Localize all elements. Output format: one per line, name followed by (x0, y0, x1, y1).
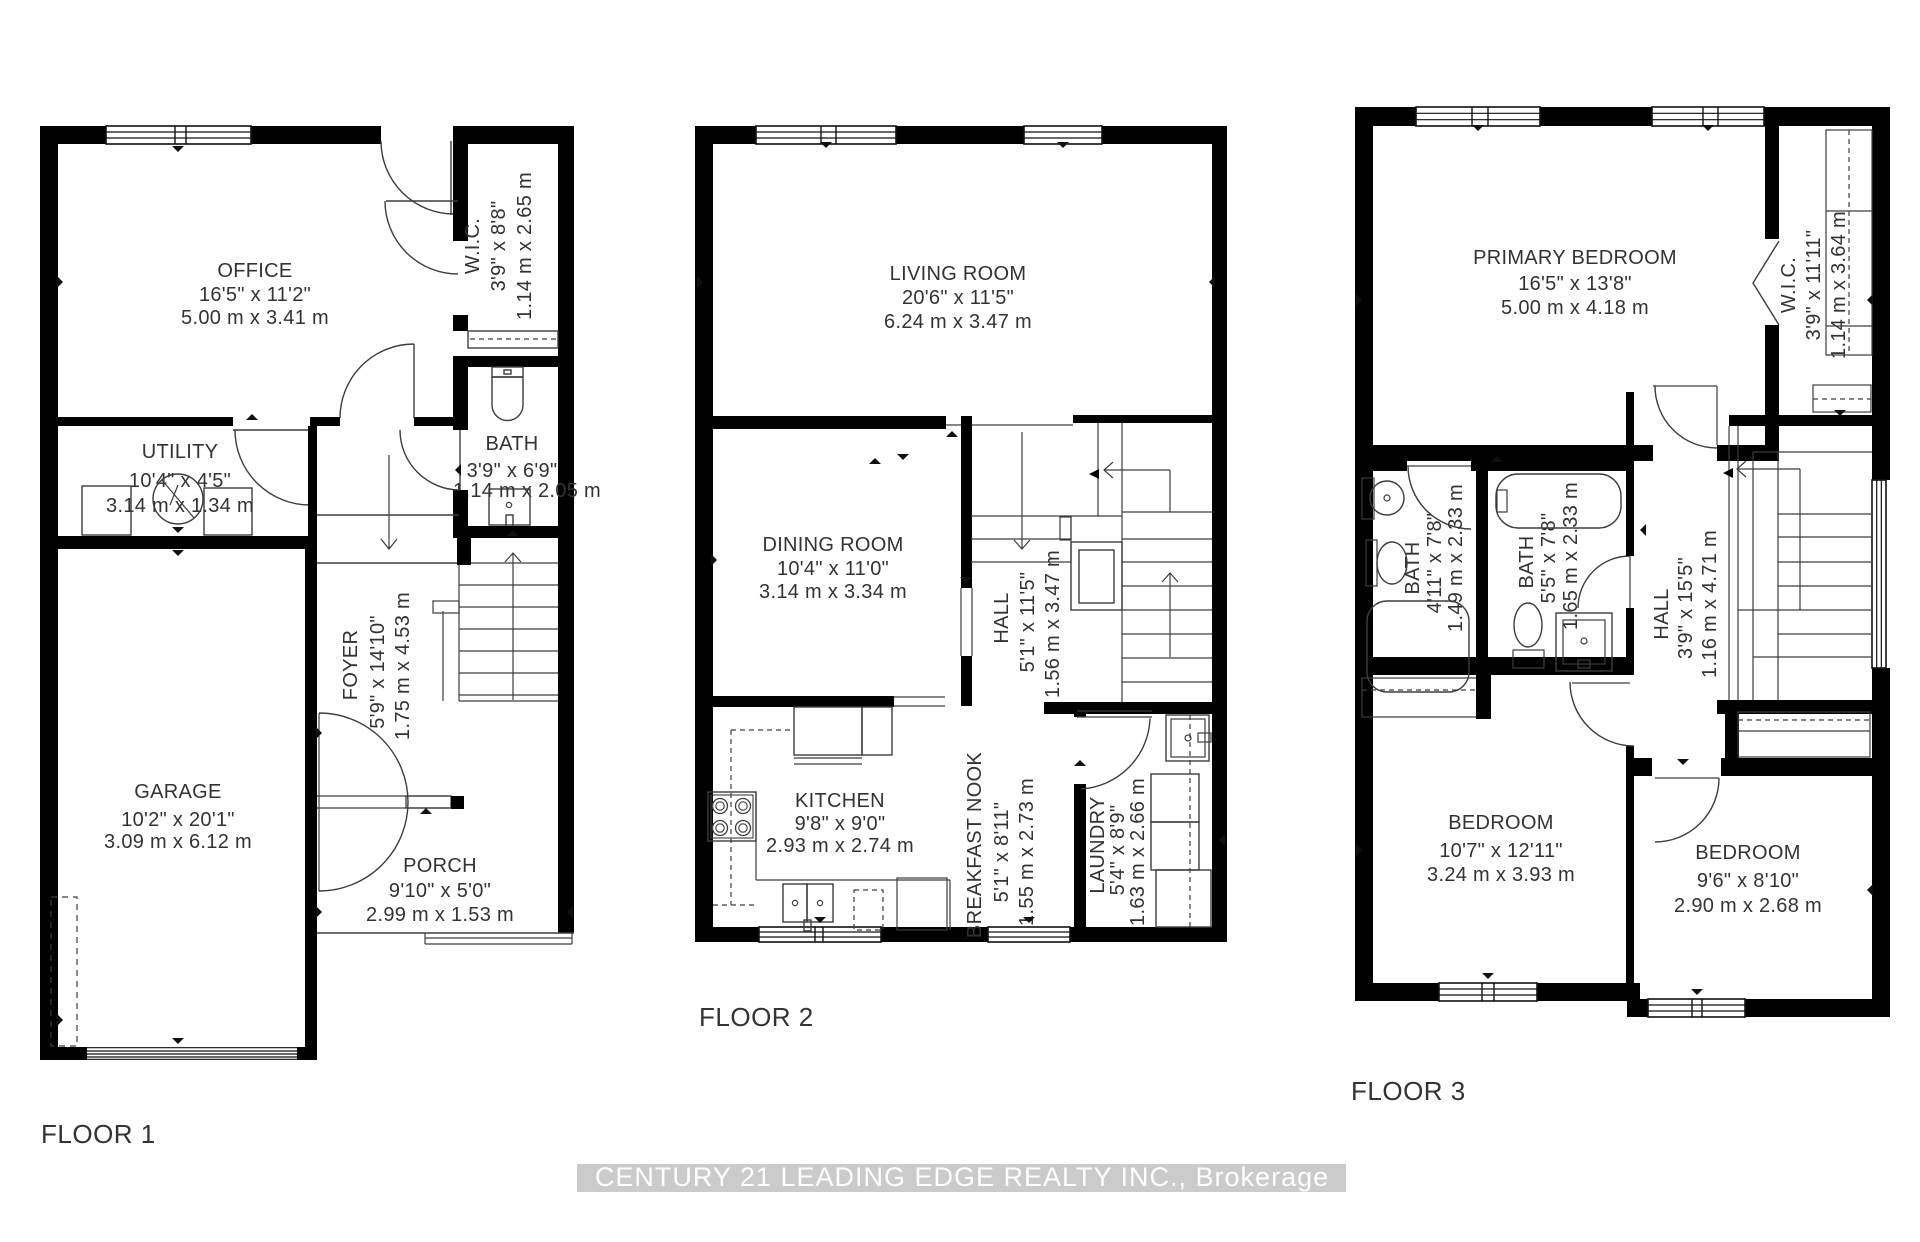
svg-text:5'4" x 8'9": 5'4" x 8'9" (1107, 805, 1129, 896)
svg-text:PORCH: PORCH (403, 855, 477, 877)
svg-text:16'5" x 11'2": 16'5" x 11'2" (199, 284, 311, 306)
svg-text:9'6" x 8'10": 9'6" x 8'10" (1697, 870, 1799, 892)
svg-text:3'9" x 6'9": 3'9" x 6'9" (467, 460, 558, 482)
svg-text:FLOOR 3: FLOOR 3 (1351, 1076, 1466, 1106)
svg-text:5'1" x 11'5": 5'1" x 11'5" (1017, 572, 1039, 673)
svg-text:2.99 m x 1.53 m: 2.99 m x 1.53 m (366, 904, 514, 926)
svg-text:BATH: BATH (485, 433, 538, 455)
svg-text:BATH: BATH (1516, 535, 1538, 588)
svg-text:4'11" x 7'8": 4'11" x 7'8" (1424, 513, 1446, 614)
svg-text:5'5" x 7'8": 5'5" x 7'8" (1538, 513, 1560, 604)
svg-text:HALL: HALL (1651, 588, 1673, 639)
svg-text:1.14 m x 3.64 m: 1.14 m x 3.64 m (1828, 211, 1850, 359)
svg-text:5'1" x 8'11": 5'1" x 8'11" (991, 802, 1013, 903)
svg-text:1.49 m x 2.33 m: 1.49 m x 2.33 m (1445, 484, 1467, 632)
svg-text:3.09 m x 6.12 m: 3.09 m x 6.12 m (104, 831, 252, 853)
svg-text:GARAGE: GARAGE (134, 781, 221, 803)
svg-text:16'5" x 13'8": 16'5" x 13'8" (1518, 273, 1632, 295)
svg-text:2.93 m x 2.74 m: 2.93 m x 2.74 m (766, 835, 914, 857)
svg-text:20'6" x 11'5": 20'6" x 11'5" (902, 287, 1014, 309)
svg-text:3.24 m x 3.93 m: 3.24 m x 3.93 m (1427, 864, 1575, 886)
svg-text:3'9" x 11'11": 3'9" x 11'11" (1803, 230, 1825, 341)
svg-text:W.I.C.: W.I.C. (462, 218, 484, 274)
svg-text:1.14 m x 2.05 m: 1.14 m x 2.05 m (453, 480, 601, 502)
svg-text:5'9" x 14'10": 5'9" x 14'10" (367, 615, 389, 729)
svg-text:10'7" x 12'11": 10'7" x 12'11" (1439, 840, 1563, 862)
svg-text:1.65 m x 2.33 m: 1.65 m x 2.33 m (1560, 482, 1582, 630)
svg-text:10'2" x 20'1": 10'2" x 20'1" (121, 809, 235, 831)
svg-text:BATH: BATH (1402, 541, 1424, 594)
svg-text:5.00 m x 4.18 m: 5.00 m x 4.18 m (1501, 297, 1649, 319)
svg-text:2.90 m x 2.68 m: 2.90 m x 2.68 m (1674, 895, 1822, 917)
svg-text:10'4" x 4'5": 10'4" x 4'5" (129, 470, 231, 492)
svg-text:1.56 m x 3.47 m: 1.56 m x 3.47 m (1042, 550, 1064, 698)
svg-text:FOYER: FOYER (340, 630, 362, 700)
svg-text:FLOOR 2: FLOOR 2 (699, 1002, 814, 1032)
svg-text:DINING ROOM: DINING ROOM (762, 534, 903, 556)
svg-text:LAUNDRY: LAUNDRY (1087, 796, 1109, 893)
svg-text:BEDROOM: BEDROOM (1448, 812, 1553, 834)
svg-text:HALL: HALL (991, 592, 1013, 643)
svg-text:9'8" x 9'0": 9'8" x 9'0" (795, 813, 886, 835)
svg-text:9'10" x 5'0": 9'10" x 5'0" (389, 880, 491, 902)
svg-text:1.16 m x 4.71 m: 1.16 m x 4.71 m (1699, 530, 1721, 678)
svg-text:PRIMARY BEDROOM: PRIMARY BEDROOM (1473, 247, 1677, 269)
svg-text:KITCHEN: KITCHEN (795, 790, 885, 812)
svg-text:6.24 m x 3.47 m: 6.24 m x 3.47 m (884, 311, 1032, 333)
svg-text:CENTURY 21 LEADING EDGE REALTY: CENTURY 21 LEADING EDGE REALTY INC., Bro… (595, 1162, 1329, 1192)
svg-text:OFFICE: OFFICE (217, 260, 292, 282)
svg-text:1.55 m x 2.73 m: 1.55 m x 2.73 m (1016, 778, 1038, 926)
svg-text:LIVING ROOM: LIVING ROOM (890, 263, 1027, 285)
svg-text:BREAKFAST NOOK: BREAKFAST NOOK (964, 752, 986, 938)
svg-text:3'9" x 8'8": 3'9" x 8'8" (488, 201, 510, 292)
svg-text:1.75 m x 4.53 m: 1.75 m x 4.53 m (392, 592, 414, 740)
svg-text:W.I.C.: W.I.C. (1778, 257, 1800, 313)
svg-text:3.14 m x 1.34 m: 3.14 m x 1.34 m (106, 495, 254, 517)
svg-text:3'9" x 15'5": 3'9" x 15'5" (1675, 557, 1697, 659)
svg-text:10'4" x 11'0": 10'4" x 11'0" (777, 558, 889, 580)
svg-text:1.14 m x 2.65 m: 1.14 m x 2.65 m (514, 172, 536, 320)
svg-text:5.00 m x 3.41 m: 5.00 m x 3.41 m (181, 307, 329, 329)
svg-text:UTILITY: UTILITY (142, 441, 219, 463)
svg-text:BEDROOM: BEDROOM (1695, 842, 1800, 864)
svg-text:1.63 m x 2.66 m: 1.63 m x 2.66 m (1127, 778, 1149, 926)
svg-text:FLOOR 1: FLOOR 1 (41, 1119, 156, 1149)
svg-text:3.14 m x 3.34 m: 3.14 m x 3.34 m (759, 581, 907, 603)
